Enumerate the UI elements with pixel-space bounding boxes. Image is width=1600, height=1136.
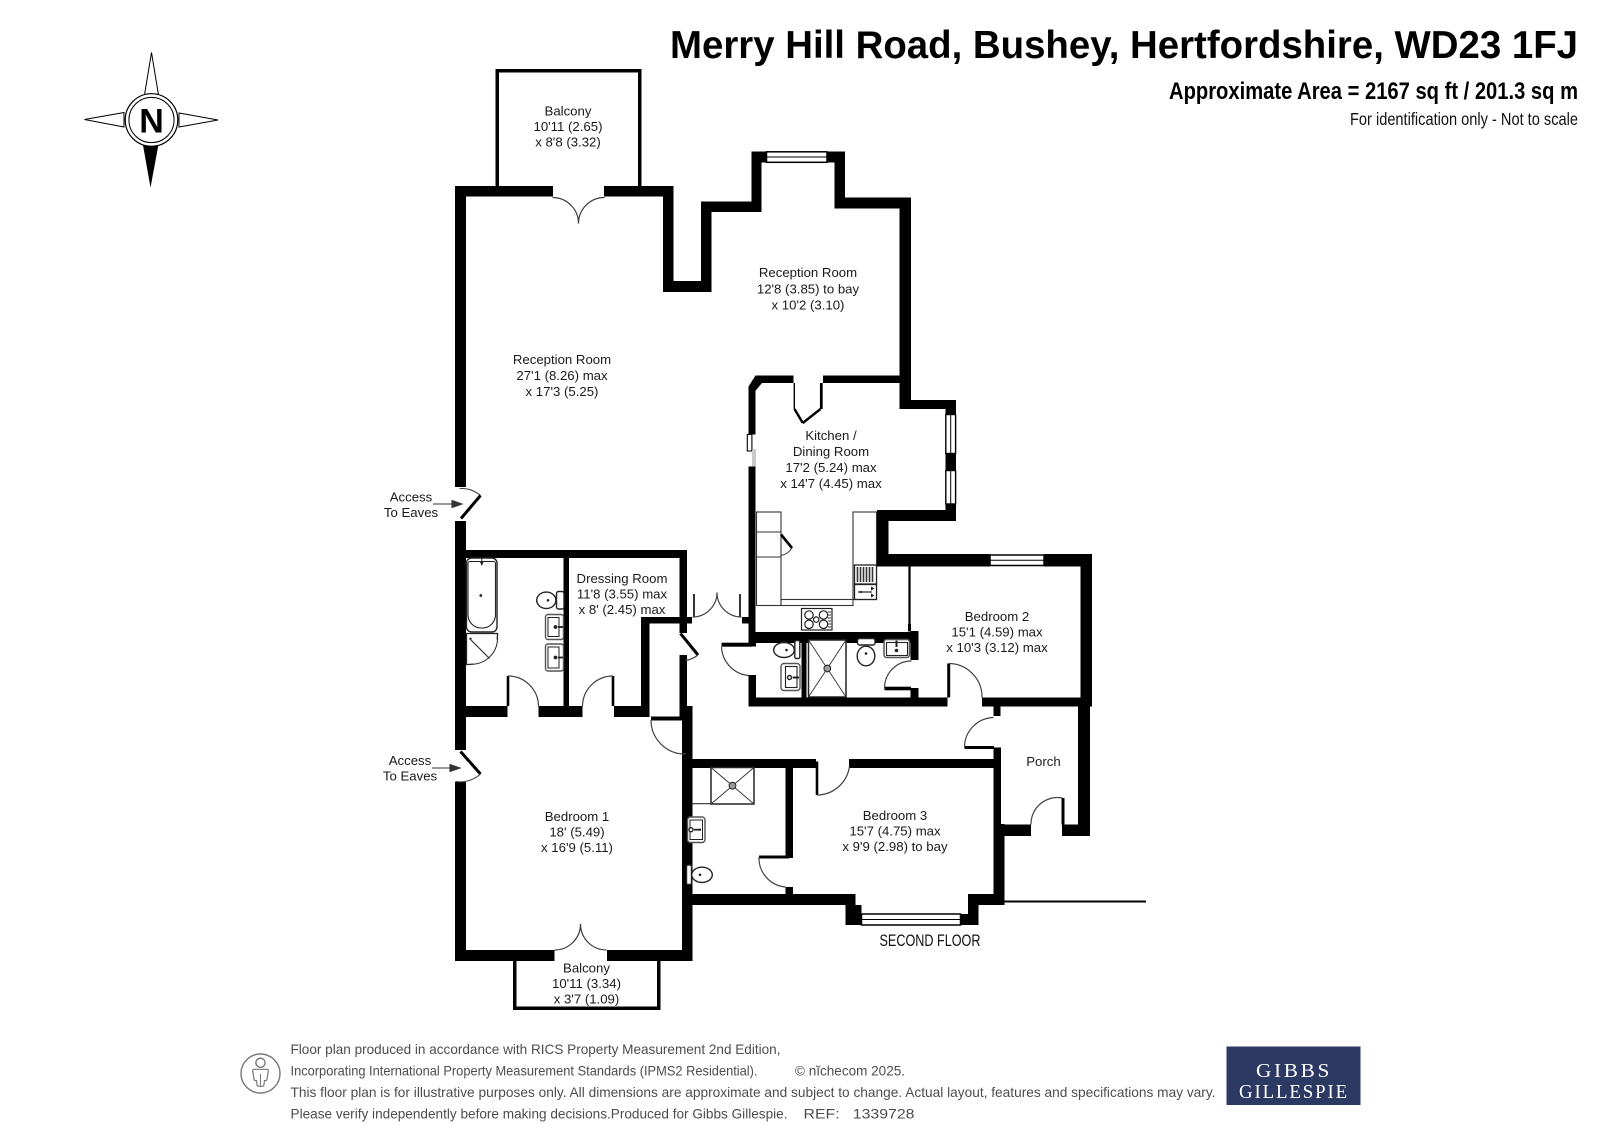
svg-text:For identification only - Not: For identification only - Not to scale [1350,109,1578,129]
svg-text:GIBBS: GIBBS [1256,1060,1332,1082]
svg-text:N: N [139,103,164,141]
svg-text:x 16'9 (5.11): x 16'9 (5.11) [541,840,613,855]
svg-text:27'1 (8.26) max: 27'1 (8.26) max [516,368,608,383]
svg-text:This floor plan is for illustr: This floor plan is for illustrative purp… [291,1084,1216,1100]
svg-text:x 10'3 (3.12) max: x 10'3 (3.12) max [946,640,1048,655]
svg-text:© nĭchecom 2025.: © nĭchecom 2025. [795,1063,905,1079]
svg-text:To Eaves: To Eaves [384,505,439,520]
svg-text:GILLESPIE: GILLESPIE [1239,1081,1349,1103]
svg-text:Dining Room: Dining Room [793,444,869,459]
svg-text:x 17'3 (5.25): x 17'3 (5.25) [526,384,599,399]
svg-text:10'11 (2.65): 10'11 (2.65) [534,119,603,134]
svg-text:15'1 (4.59) max: 15'1 (4.59) max [951,625,1043,640]
svg-text:Incorporating International Pr: Incorporating International Property Mea… [291,1063,758,1079]
svg-text:x 8' (2.45) max: x 8' (2.45) max [579,602,666,617]
svg-text:Bedroom 1: Bedroom 1 [545,809,610,824]
svg-text:Floor plan produced in accorda: Floor plan produced in accordance with R… [291,1041,781,1057]
svg-text:x 9'9 (2.98) to bay: x 9'9 (2.98) to bay [842,839,948,854]
svg-text:x 10'2 (3.10): x 10'2 (3.10) [772,298,845,313]
svg-text:18' (5.49): 18' (5.49) [549,825,604,840]
svg-text:x 3'7 (1.09): x 3'7 (1.09) [554,992,620,1007]
svg-text:Merry Hill Road, Bushey, Hertf: Merry Hill Road, Bushey, Hertfordshire, … [670,24,1578,67]
svg-text:17'2 (5.24) max: 17'2 (5.24) max [785,460,877,475]
svg-text:REF: 1339728: REF: 1339728 [804,1106,915,1122]
svg-text:Balcony: Balcony [545,104,592,119]
svg-text:Reception Room: Reception Room [759,265,857,280]
svg-text:Bedroom 2: Bedroom 2 [965,609,1030,624]
svg-text:Please verify independently be: Please verify independently before makin… [291,1106,788,1122]
svg-text:x 8'8 (3.32): x 8'8 (3.32) [535,135,601,150]
svg-text:11'8 (3.55) max: 11'8 (3.55) max [577,587,668,602]
svg-text:Access: Access [389,753,432,768]
svg-text:15'7 (4.75) max: 15'7 (4.75) max [849,824,941,839]
svg-text:Bedroom 3: Bedroom 3 [863,808,928,823]
svg-text:Reception Room: Reception Room [513,352,611,367]
svg-text:Dressing Room: Dressing Room [577,571,668,586]
svg-text:x 14'7 (4.45) max: x 14'7 (4.45) max [780,476,882,491]
svg-text:To Eaves: To Eaves [383,769,438,784]
svg-text:Porch: Porch [1026,754,1060,769]
svg-text:Approximate Area = 2167 sq ft: Approximate Area = 2167 sq ft / 201.3 sq… [1169,78,1578,105]
svg-text:Kitchen /: Kitchen / [805,428,857,443]
svg-text:12'8 (3.85) to bay: 12'8 (3.85) to bay [757,282,860,297]
svg-text:10'11 (3.34): 10'11 (3.34) [552,976,621,991]
svg-text:Access: Access [390,490,433,505]
svg-text:SECOND FLOOR: SECOND FLOOR [880,932,981,950]
svg-text:Balcony: Balcony [563,961,610,976]
